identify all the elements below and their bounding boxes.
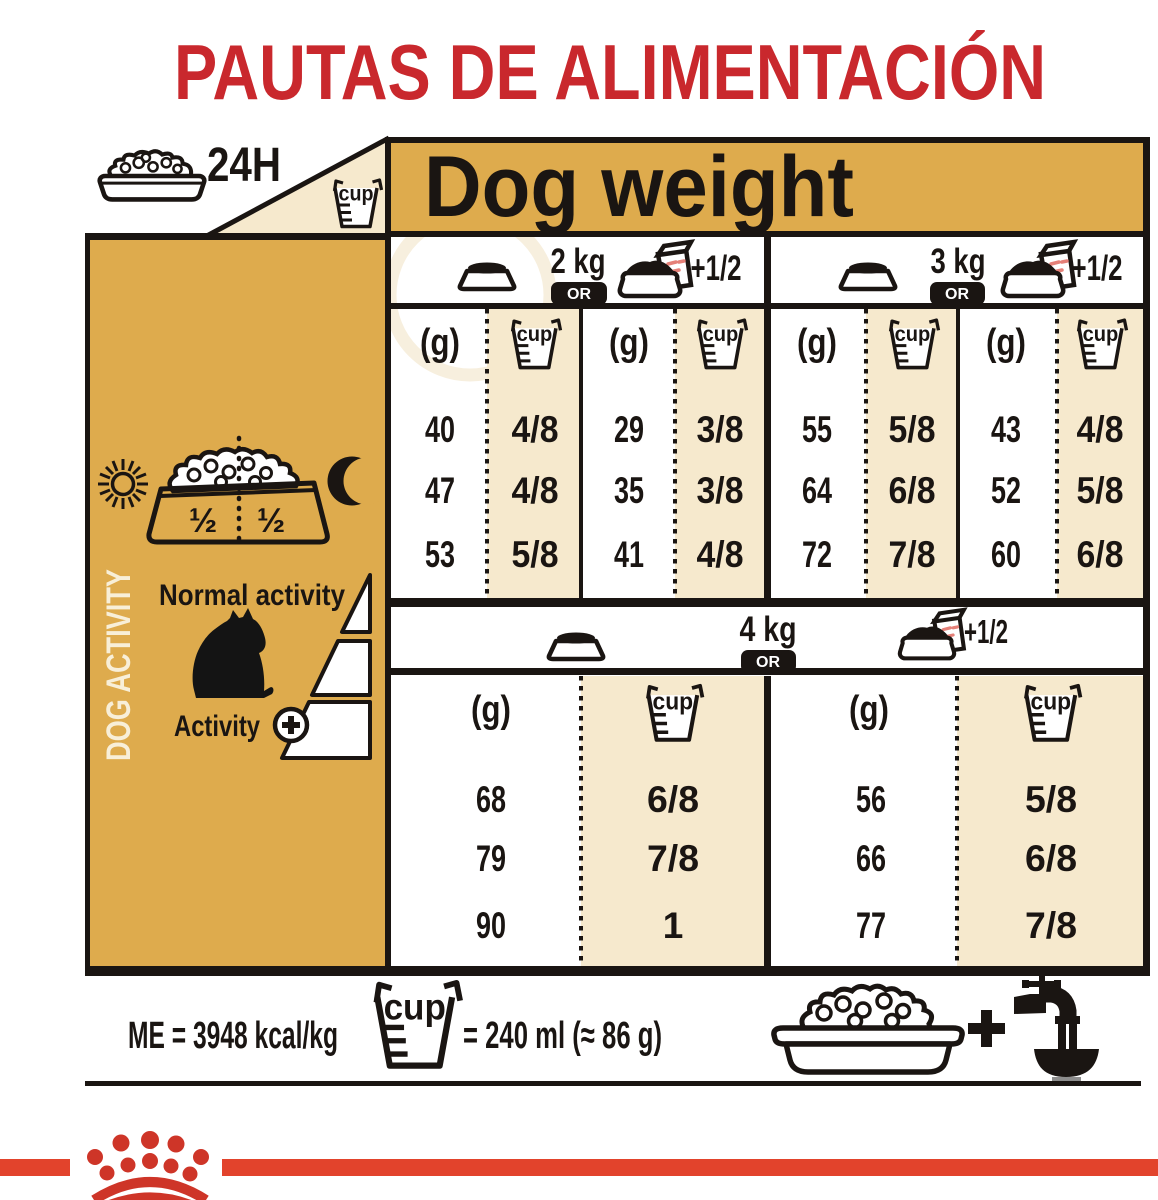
svg-text:55: 55 — [802, 409, 832, 450]
svg-text:77: 77 — [856, 905, 886, 946]
svg-text:(g): (g) — [609, 322, 649, 364]
svg-text:7/8: 7/8 — [889, 534, 936, 575]
svg-text:Normal activity: Normal activity — [159, 579, 345, 612]
svg-text:OR: OR — [756, 654, 780, 671]
svg-text:43: 43 — [991, 409, 1021, 450]
svg-text:DOG ACTIVITY: DOG ACTIVITY — [100, 569, 138, 761]
svg-text:3 kg: 3 kg — [931, 242, 986, 281]
svg-text:5/8: 5/8 — [1077, 470, 1124, 511]
svg-text:4/8: 4/8 — [512, 470, 559, 511]
svg-text:4/8: 4/8 — [512, 409, 559, 450]
svg-text:6/8: 6/8 — [647, 779, 699, 820]
svg-text:OR: OR — [567, 286, 591, 303]
svg-text:6/8: 6/8 — [1025, 838, 1077, 879]
svg-text:5/8: 5/8 — [889, 409, 936, 450]
svg-text:64: 64 — [802, 470, 832, 511]
svg-text:40: 40 — [425, 409, 455, 450]
svg-text:(g): (g) — [420, 322, 460, 364]
svg-text:OR: OR — [945, 286, 969, 303]
svg-text:½: ½ — [257, 502, 285, 540]
svg-text:Activity: Activity — [174, 710, 260, 743]
svg-text:4 kg: 4 kg — [740, 610, 797, 649]
svg-text:66: 66 — [856, 838, 886, 879]
svg-text:(g): (g) — [797, 322, 837, 364]
svg-text:3/8: 3/8 — [697, 470, 744, 511]
svg-text:½: ½ — [189, 502, 217, 540]
svg-text:35: 35 — [614, 470, 644, 511]
svg-text:29: 29 — [614, 409, 644, 450]
svg-text:(g): (g) — [849, 689, 889, 731]
svg-text:(g): (g) — [986, 322, 1026, 364]
svg-text:24H: 24H — [207, 139, 281, 192]
svg-text:4/8: 4/8 — [697, 534, 744, 575]
svg-text:7/8: 7/8 — [1025, 905, 1077, 946]
svg-text:6/8: 6/8 — [889, 470, 936, 511]
svg-text:+1/2: +1/2 — [691, 249, 742, 288]
svg-text:ME = 3948 kcal/kg: ME = 3948 kcal/kg — [128, 1015, 338, 1057]
svg-text:72: 72 — [802, 534, 832, 575]
svg-text:90: 90 — [476, 905, 506, 946]
svg-text:+1/2: +1/2 — [1072, 249, 1123, 288]
svg-text:2 kg: 2 kg — [551, 242, 606, 281]
svg-text:Dog weight: Dog weight — [424, 139, 854, 235]
svg-text:PAUTAS DE ALIMENTACIÓN: PAUTAS DE ALIMENTACIÓN — [174, 28, 1046, 116]
svg-text:60: 60 — [991, 534, 1021, 575]
svg-text:47: 47 — [425, 470, 455, 511]
svg-text:1: 1 — [663, 905, 684, 946]
svg-text:5/8: 5/8 — [512, 534, 559, 575]
svg-text:7/8: 7/8 — [647, 838, 699, 879]
svg-text:5/8: 5/8 — [1025, 779, 1077, 820]
svg-text:4/8: 4/8 — [1077, 409, 1124, 450]
svg-text:53: 53 — [425, 534, 455, 575]
svg-text:3/8: 3/8 — [697, 409, 744, 450]
svg-text:6/8: 6/8 — [1077, 534, 1124, 575]
svg-text:52: 52 — [991, 470, 1021, 511]
svg-text:+1/2: +1/2 — [964, 613, 1008, 650]
svg-text:41: 41 — [614, 534, 644, 575]
svg-text:= 240 ml (≈ 86 g): = 240 ml (≈ 86 g) — [463, 1015, 662, 1057]
svg-text:79: 79 — [476, 838, 506, 879]
svg-text:68: 68 — [476, 779, 506, 820]
svg-text:(g): (g) — [471, 689, 511, 731]
svg-text:56: 56 — [856, 779, 886, 820]
